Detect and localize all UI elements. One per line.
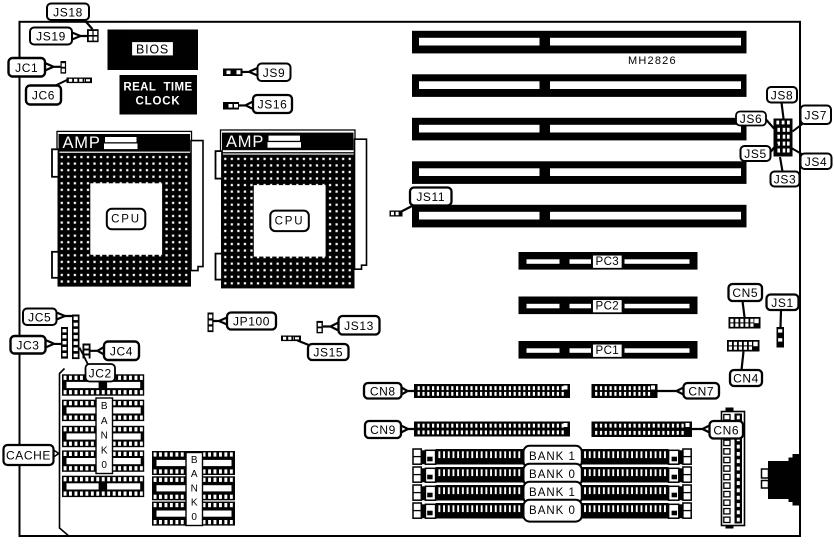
svg-text:CN5: CN5: [732, 286, 758, 300]
svg-text:JS7: JS7: [805, 108, 827, 122]
svg-text:JS15: JS15: [313, 346, 343, 360]
svg-text:JS16: JS16: [258, 98, 288, 112]
svg-text:PC2: PC2: [596, 301, 620, 313]
svg-text:N: N: [191, 483, 198, 494]
svg-text:A: A: [101, 416, 108, 427]
svg-text:JS6: JS6: [740, 112, 762, 126]
svg-text:CACHE: CACHE: [6, 449, 51, 463]
svg-text:CPU: CPU: [111, 214, 141, 226]
svg-text:CLOCK: CLOCK: [136, 96, 181, 108]
svg-text:CN6: CN6: [713, 423, 739, 437]
svg-text:JS4: JS4: [805, 155, 827, 169]
svg-text:0: 0: [191, 512, 197, 523]
svg-text:B: B: [191, 455, 198, 466]
svg-text:CN8: CN8: [370, 384, 396, 398]
svg-text:JS1: JS1: [771, 296, 793, 310]
svg-text:AMP: AMP: [63, 134, 101, 152]
svg-text:JS9: JS9: [263, 66, 285, 80]
svg-text:0: 0: [101, 460, 107, 471]
svg-text:BANK 0: BANK 0: [529, 469, 576, 481]
svg-text:MH2826: MH2826: [628, 55, 677, 67]
svg-text:AMP: AMP: [226, 133, 264, 151]
svg-text:K: K: [191, 498, 198, 509]
svg-text:JS3: JS3: [774, 173, 796, 187]
svg-text:A: A: [191, 469, 198, 480]
svg-text:JC3: JC3: [16, 338, 39, 352]
svg-text:BANK 1: BANK 1: [529, 487, 576, 499]
svg-text:JS19: JS19: [36, 30, 66, 44]
svg-text:B: B: [101, 401, 108, 412]
svg-text:JS11: JS11: [416, 190, 445, 204]
svg-text:JC2: JC2: [89, 366, 112, 380]
svg-text:JS5: JS5: [744, 147, 766, 161]
svg-text:JS8: JS8: [771, 88, 793, 102]
svg-text:JP100: JP100: [233, 315, 270, 329]
svg-text:JS13: JS13: [344, 319, 374, 333]
svg-text:CPU: CPU: [275, 215, 305, 227]
svg-text:PC1: PC1: [596, 345, 620, 357]
svg-text:JC4: JC4: [110, 344, 133, 358]
svg-text:CN4: CN4: [733, 372, 759, 386]
svg-text:BANK 0: BANK 0: [529, 505, 576, 517]
svg-text:BANK 1: BANK 1: [529, 451, 576, 463]
svg-text:JS18: JS18: [53, 5, 83, 19]
svg-text:JC6: JC6: [32, 89, 55, 103]
svg-text:REAL TIME: REAL TIME: [123, 82, 192, 94]
svg-text:K: K: [101, 445, 108, 456]
svg-text:JC1: JC1: [15, 61, 38, 75]
svg-text:JC5: JC5: [28, 310, 51, 324]
svg-text:BIOS: BIOS: [136, 42, 169, 56]
svg-text:PC3: PC3: [596, 256, 620, 268]
svg-text:N: N: [101, 431, 108, 442]
svg-text:CN9: CN9: [370, 423, 396, 437]
svg-text:CN7: CN7: [688, 384, 714, 398]
